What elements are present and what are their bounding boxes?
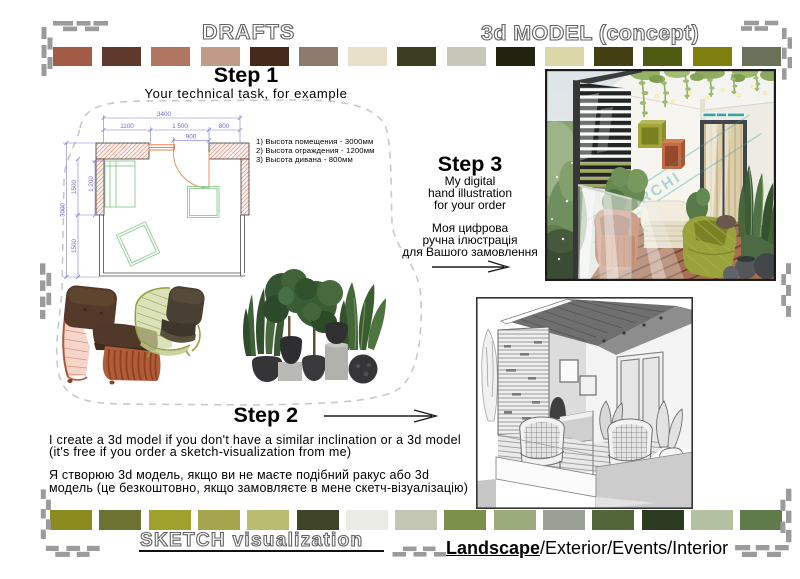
svg-text:900: 900 [186,134,197,141]
svg-text:1 200: 1 200 [88,176,95,192]
svg-text:1500: 1500 [71,180,78,195]
svg-text:1500: 1500 [71,239,78,254]
svg-text:1100: 1100 [120,123,134,130]
svg-text:800: 800 [219,123,230,130]
svg-text:3000: 3000 [60,203,66,218]
svg-text:1 500: 1 500 [172,123,188,130]
svg-text:3400: 3400 [157,111,172,118]
